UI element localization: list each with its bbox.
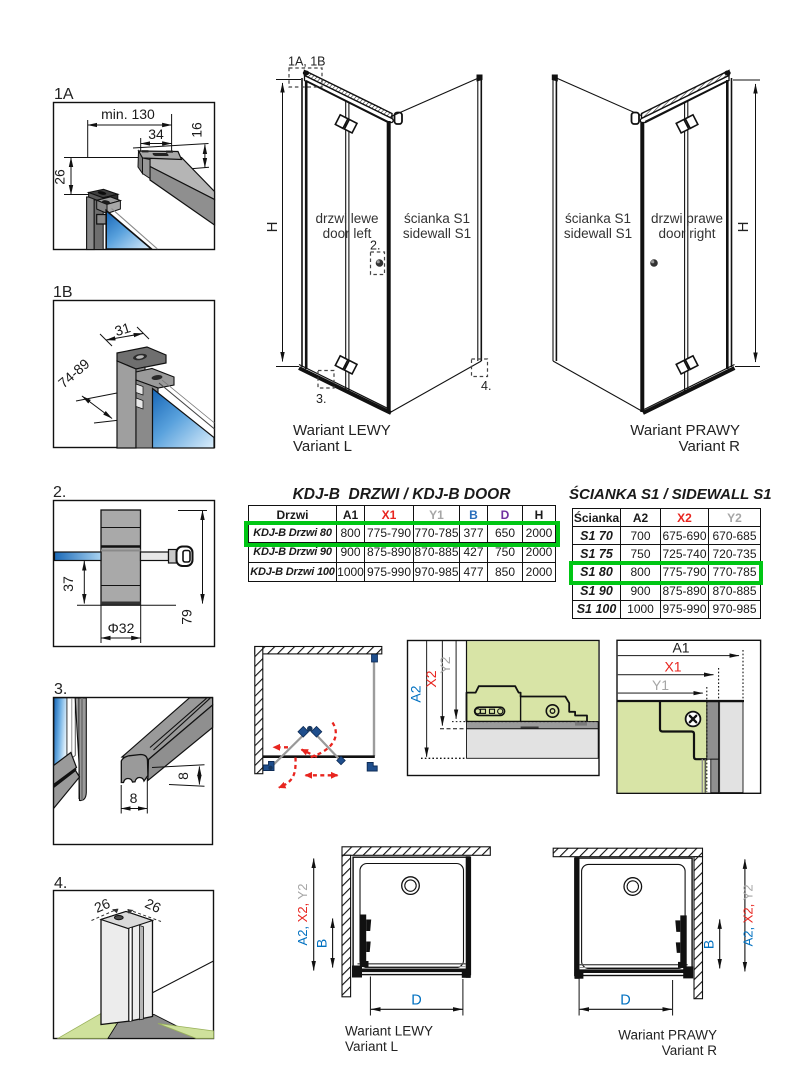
svg-text:Variant R: Variant R: [662, 1043, 718, 1058]
svg-text:Variant R: Variant R: [679, 438, 741, 455]
svg-text:D: D: [620, 993, 630, 1009]
svg-text:3.: 3.: [316, 392, 326, 406]
svg-text:Y1: Y1: [652, 677, 669, 693]
svg-text:min. 130: min. 130: [101, 106, 155, 122]
svg-text:2.: 2.: [370, 239, 380, 253]
svg-text:B: B: [701, 940, 717, 949]
svg-text:B: B: [314, 939, 330, 948]
svg-text:2.: 2.: [53, 484, 66, 501]
svg-text:16: 16: [189, 122, 205, 138]
svg-text:H: H: [735, 222, 752, 233]
svg-text:Y2: Y2: [437, 656, 453, 673]
svg-text:X1: X1: [664, 659, 681, 675]
svg-text:8: 8: [130, 790, 138, 806]
svg-text:D: D: [411, 993, 421, 1009]
svg-text:37: 37: [60, 576, 76, 592]
svg-text:Wariant PRAWY: Wariant PRAWY: [618, 1028, 717, 1043]
svg-text:Wariant LEWY: Wariant LEWY: [293, 422, 391, 439]
svg-text:1B: 1B: [53, 284, 73, 301]
svg-text:A1: A1: [672, 640, 689, 656]
svg-text:ścianka S1: ścianka S1: [404, 211, 470, 226]
svg-text:drzwi prawe: drzwi prawe: [651, 211, 723, 226]
svg-text:A2, X2, Y2: A2, X2, Y2: [741, 884, 756, 946]
svg-text:Wariant PRAWY: Wariant PRAWY: [630, 422, 740, 439]
svg-text:1A, 1B: 1A, 1B: [288, 55, 326, 69]
svg-text:A2: A2: [408, 685, 424, 702]
svg-text:26: 26: [52, 169, 68, 185]
svg-text:4.: 4.: [54, 875, 67, 892]
svg-text:door left: door left: [323, 226, 372, 241]
svg-text:sidewall S1: sidewall S1: [403, 226, 471, 241]
svg-text:Variant L: Variant L: [345, 1039, 399, 1054]
svg-text:8: 8: [175, 772, 191, 780]
svg-text:Φ32: Φ32: [108, 620, 135, 636]
svg-text:A2, X2, Y2: A2, X2, Y2: [295, 884, 310, 946]
svg-text:Wariant LEWY: Wariant LEWY: [345, 1024, 433, 1039]
svg-text:ścianka S1: ścianka S1: [565, 211, 631, 226]
svg-text:3.: 3.: [54, 681, 67, 698]
svg-text:1A: 1A: [54, 86, 74, 103]
svg-text:H: H: [264, 222, 281, 233]
svg-text:door right: door right: [658, 226, 715, 241]
svg-text:4.: 4.: [481, 379, 491, 393]
svg-text:Variant L: Variant L: [293, 438, 352, 455]
svg-text:sidewall S1: sidewall S1: [564, 226, 632, 241]
svg-text:drzwi lewe: drzwi lewe: [315, 211, 378, 226]
svg-text:34: 34: [148, 126, 164, 142]
svg-text:79: 79: [179, 609, 195, 625]
